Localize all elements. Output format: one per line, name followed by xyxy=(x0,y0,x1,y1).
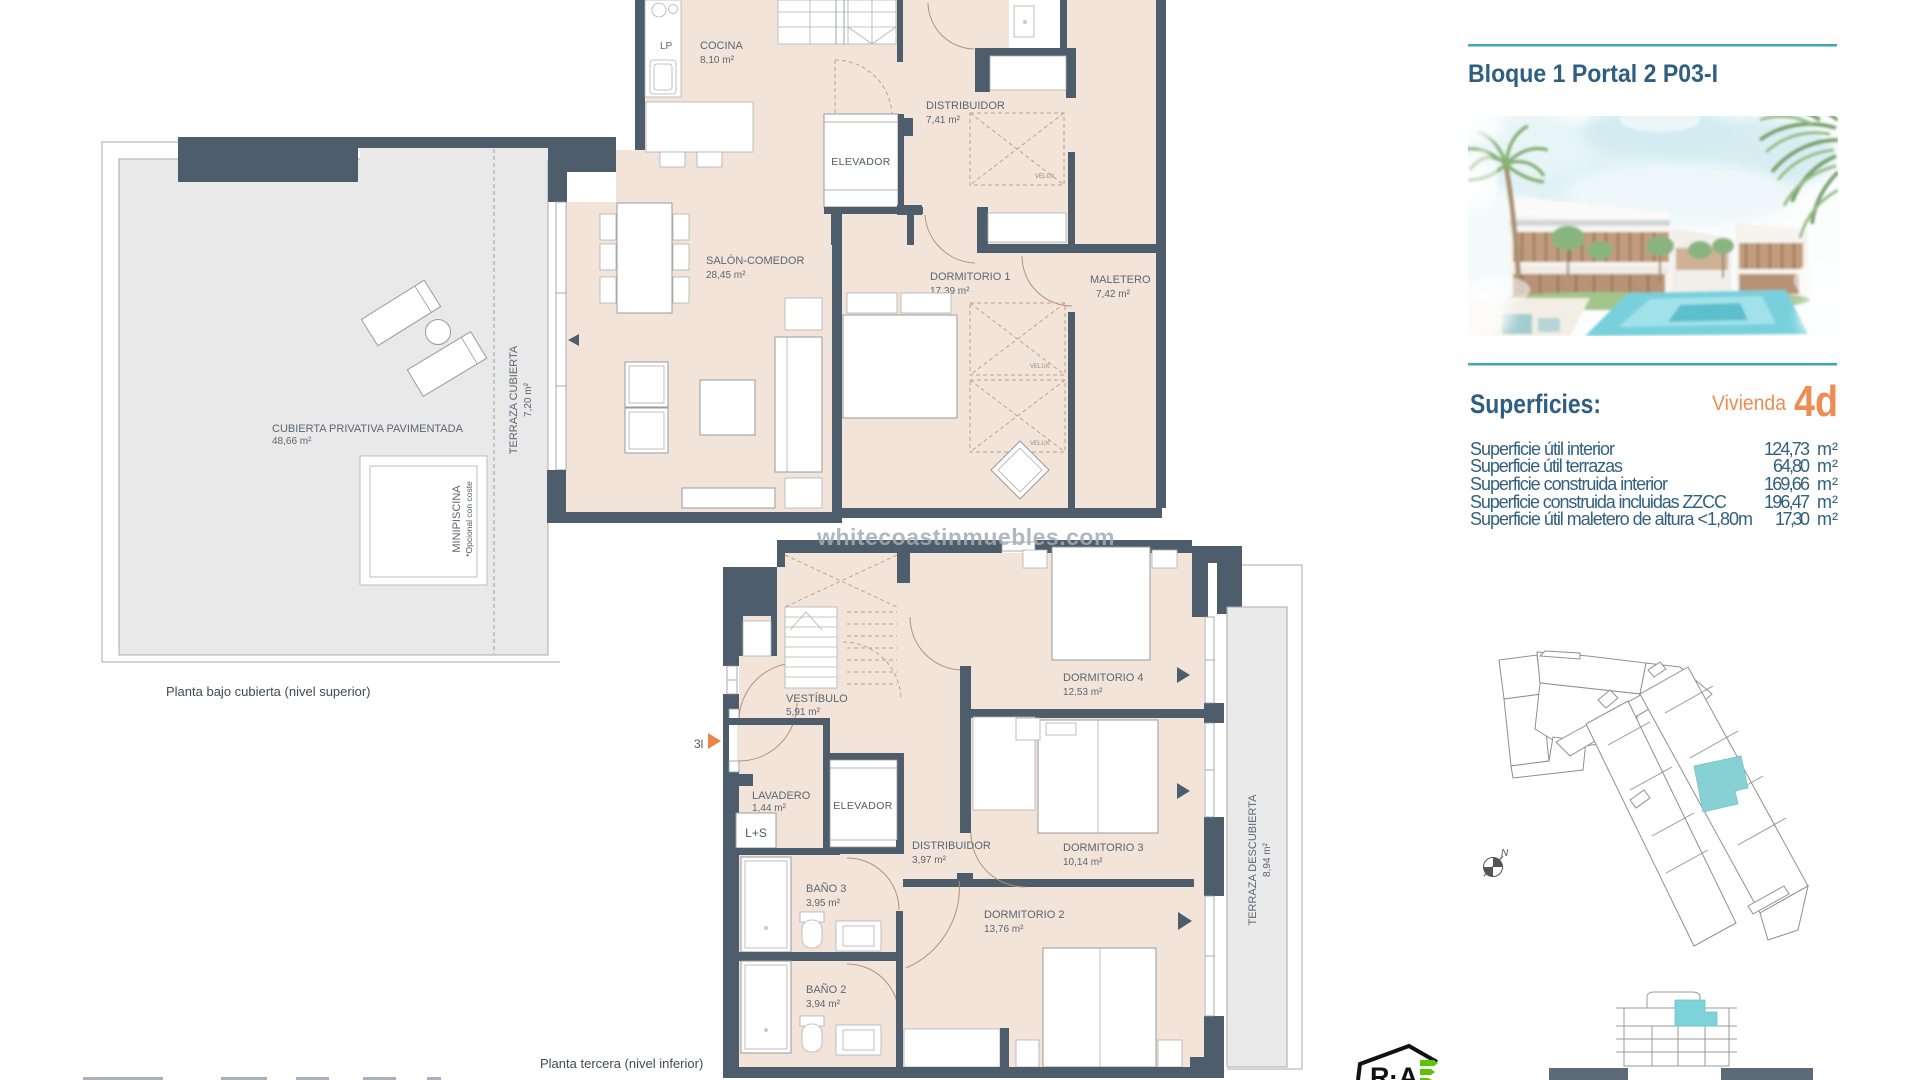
svg-text:13,76 m²: 13,76 m² xyxy=(984,924,1024,935)
svg-text:VELUX: VELUX xyxy=(1030,441,1050,447)
svg-text:Superficie construida interior: Superficie construida interior xyxy=(1470,474,1668,494)
svg-text:DORMITORIO 4: DORMITORIO 4 xyxy=(1063,672,1143,684)
svg-text:VESTÍBULO: VESTÍBULO xyxy=(786,692,848,705)
svg-text:MALETERO: MALETERO xyxy=(1090,274,1151,286)
svg-text:8,94 m²: 8,94 m² xyxy=(1262,842,1273,877)
svg-text:TERRAZA CUBIERTA: TERRAZA CUBIERTA xyxy=(508,345,520,454)
svg-text:DORMITORIO 3: DORMITORIO 3 xyxy=(1063,842,1143,854)
svg-text:R·A: R·A xyxy=(1370,1062,1418,1080)
svg-text:1,44 m²: 1,44 m² xyxy=(752,803,787,814)
svg-text:ELEVADOR: ELEVADOR xyxy=(831,156,891,168)
svg-text:Planta tercera (nivel inferior: Planta tercera (nivel inferior) xyxy=(540,1056,703,1071)
svg-text:CUBIERTA PRIVATIVA PAVIMENTADA: CUBIERTA PRIVATIVA PAVIMENTADA xyxy=(272,423,464,435)
svg-text:BAÑO 2: BAÑO 2 xyxy=(806,983,846,996)
svg-text:10,14 m²: 10,14 m² xyxy=(1063,857,1103,868)
svg-text:COCINA: COCINA xyxy=(700,40,743,52)
svg-text:L+S: L+S xyxy=(745,826,767,840)
svg-text:28,45 m²: 28,45 m² xyxy=(706,270,746,281)
svg-text:Superficie útil maletero de al: Superficie útil maletero de altura <1,80… xyxy=(1470,509,1753,529)
svg-text:SALÓN-COMEDOR: SALÓN-COMEDOR xyxy=(706,254,804,267)
svg-text:7,41 m²: 7,41 m² xyxy=(926,115,961,126)
svg-text:VELUX: VELUX xyxy=(1035,174,1055,180)
svg-text:64,80: 64,80 xyxy=(1773,456,1810,476)
svg-text:Superficie útil terrazas: Superficie útil terrazas xyxy=(1470,456,1623,476)
svg-text:3l: 3l xyxy=(694,737,703,751)
svg-text:DORMITORIO 2: DORMITORIO 2 xyxy=(984,909,1064,921)
svg-text:DISTRIBUIDOR: DISTRIBUIDOR xyxy=(912,840,991,852)
svg-text:N: N xyxy=(1501,848,1509,859)
svg-text:4d: 4d xyxy=(1794,377,1838,426)
svg-text:5,91 m²: 5,91 m² xyxy=(786,707,821,718)
svg-text:Superficies:: Superficies: xyxy=(1470,389,1601,419)
svg-text:8,10 m²: 8,10 m² xyxy=(700,55,735,66)
svg-text:m²: m² xyxy=(1817,509,1838,529)
svg-text:m²: m² xyxy=(1817,474,1838,494)
svg-text:*Opcional con coste: *Opcional con coste xyxy=(464,481,474,557)
svg-text:m²: m² xyxy=(1817,456,1838,476)
svg-text:Planta bajo cubierta (nivel su: Planta bajo cubierta (nivel superior) xyxy=(166,684,371,699)
svg-text:whitecoastinmuebles.com: whitecoastinmuebles.com xyxy=(816,524,1115,550)
svg-text:ELEVADOR: ELEVADOR xyxy=(833,800,893,812)
svg-text:Bloque 1 Portal 2 P03-I: Bloque 1 Portal 2 P03-I xyxy=(1468,60,1718,88)
svg-text:DISTRIBUIDOR: DISTRIBUIDOR xyxy=(926,100,1005,112)
svg-text:12,53 m²: 12,53 m² xyxy=(1063,687,1103,698)
svg-text:169,66: 169,66 xyxy=(1764,474,1810,494)
svg-text:DORMITORIO 1: DORMITORIO 1 xyxy=(930,271,1010,283)
svg-text:LP: LP xyxy=(660,41,673,52)
svg-text:MINIPISCINA: MINIPISCINA xyxy=(451,485,463,553)
svg-text:7,42 m²: 7,42 m² xyxy=(1096,289,1131,300)
svg-text:VELUX: VELUX xyxy=(1030,364,1050,370)
svg-text:3,97 m²: 3,97 m² xyxy=(912,855,947,866)
svg-text:Vivienda: Vivienda xyxy=(1712,392,1786,415)
svg-text:7,20 m²: 7,20 m² xyxy=(523,382,534,417)
svg-text:3,94 m²: 3,94 m² xyxy=(806,999,841,1010)
svg-text:48,66 m²: 48,66 m² xyxy=(272,436,312,447)
svg-text:17,30: 17,30 xyxy=(1775,509,1810,529)
svg-text:BAÑO 3: BAÑO 3 xyxy=(806,882,846,895)
svg-text:TERRAZA DESCUBIERTA: TERRAZA DESCUBIERTA xyxy=(1247,794,1259,926)
svg-text:LAVADERO: LAVADERO xyxy=(752,790,811,802)
svg-text:3,95 m²: 3,95 m² xyxy=(806,898,841,909)
